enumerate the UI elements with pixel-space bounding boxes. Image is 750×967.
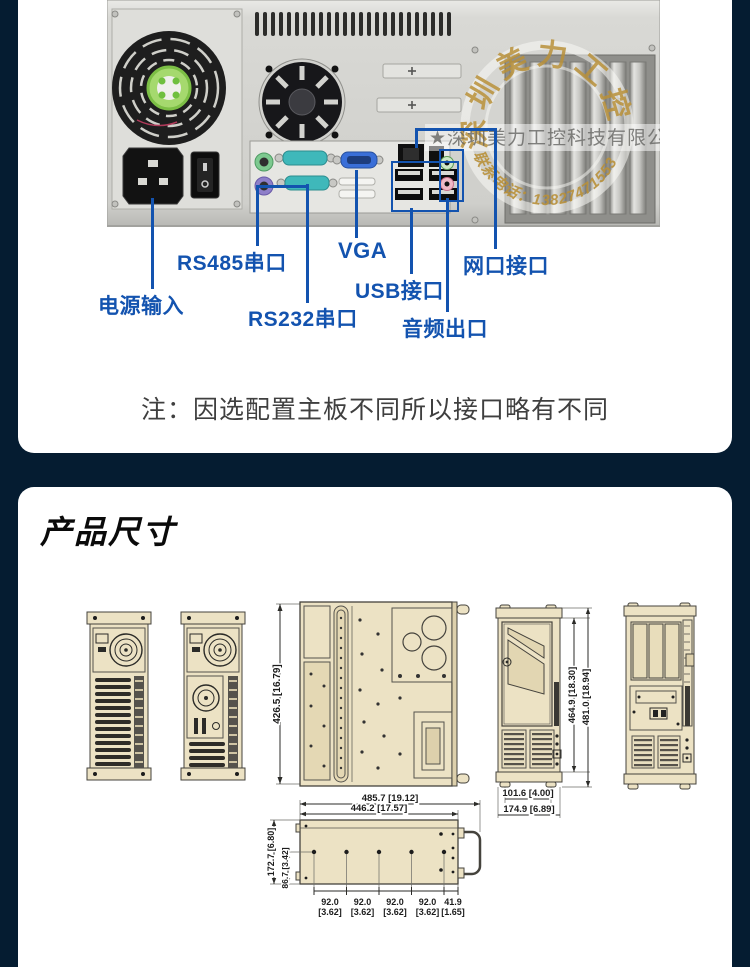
label-power: 电源输入 [98, 290, 184, 320]
dim-hole-5-in: [1.65] [441, 907, 465, 917]
dim-hole-2-mm: 92.0 [354, 897, 372, 907]
dim-side-height-outer: 172.7 [6.80] [266, 828, 276, 877]
dim-side-height-inner: 86.7 [3.42] [280, 847, 290, 888]
dim-side-width-inner: 446.2 [17.57] [351, 803, 408, 814]
dimensions-panel: 产品尺寸 [18, 487, 732, 967]
label-vga: VGA [338, 238, 387, 264]
label-rs232: RS232串口 [248, 303, 358, 333]
label-lan: 网口接口 [463, 250, 549, 280]
leader-power [151, 198, 154, 289]
rear-ports-panel: 深圳美力工控 联系电话：13827471553 ★深圳美力工控科技有限公司 ★ … [18, 0, 732, 453]
handle-outline [464, 832, 480, 874]
label-usb: USB接口 [355, 275, 444, 305]
leader-vga [355, 170, 358, 238]
section-title: 产品尺寸 [40, 507, 176, 553]
dim-hole-3-in: [3.62] [383, 907, 407, 917]
config-note: 注：因选配置主板不同所以接口略有不同 [18, 390, 732, 426]
dim-hole-1-mm: 92.0 [321, 897, 339, 907]
leader-audio [446, 198, 449, 312]
dim-hole-5-mm: 41.9 [444, 897, 462, 907]
leader-usb [410, 208, 413, 274]
drawing-front-open-view [622, 596, 700, 792]
leader-rs485-h [256, 185, 308, 188]
leader-lan-down [494, 128, 497, 249]
dim-front-height-2: 481.0 [18.94] [581, 669, 592, 726]
rear-fan-icon [259, 59, 345, 145]
label-audio: 音频出口 [402, 313, 488, 343]
drawing-front-door-view: 464.9 [18.30] 481.0 [18.94] 101.6 [4.00]… [494, 596, 606, 822]
leader-rs485 [256, 185, 259, 246]
dim-front-height-1: 464.9 [18.30] [567, 667, 578, 724]
drawing-rear-view-2 [180, 602, 248, 790]
drawing-side-view: 485.7 [19.12] 446.2 [17.57] 172.7 [6.80]… [256, 790, 506, 918]
dim-front-width-1: 101.6 [4.00] [502, 788, 553, 799]
serial-port-1 [275, 151, 335, 165]
dim-hole-4-in: [3.62] [416, 907, 440, 917]
leader-lan-across [415, 128, 496, 131]
dim-top-view-height: 426.5 [16.79] [272, 664, 283, 724]
dim-hole-2-in: [3.62] [351, 907, 375, 917]
dim-hole-1-in: [3.62] [318, 907, 342, 917]
power-inlet [123, 148, 183, 204]
drawing-rear-view-1 [86, 602, 152, 790]
label-rs485: RS485串口 [177, 247, 287, 277]
dim-hole-3-mm: 92.0 [386, 897, 404, 907]
leader-lan-up [415, 128, 418, 148]
drawing-top-view: 426.5 [16.79] [266, 594, 470, 794]
chassis-rear-photo: 深圳美力工控 联系电话：13827471553 ★深圳美力工控科技有限公司 ★ [107, 0, 660, 230]
psu-area [112, 9, 242, 209]
product-page: { "rear": { "labels": { "power": "电源输入",… [0, 0, 750, 921]
dim-hole-4-mm: 92.0 [419, 897, 437, 907]
power-switch [191, 152, 219, 198]
psu-fan-icon [112, 31, 226, 145]
audio-highlight-box [439, 149, 464, 202]
dim-front-width-2: 174.9 [6.89] [503, 804, 554, 815]
leader-rs232 [306, 184, 309, 303]
